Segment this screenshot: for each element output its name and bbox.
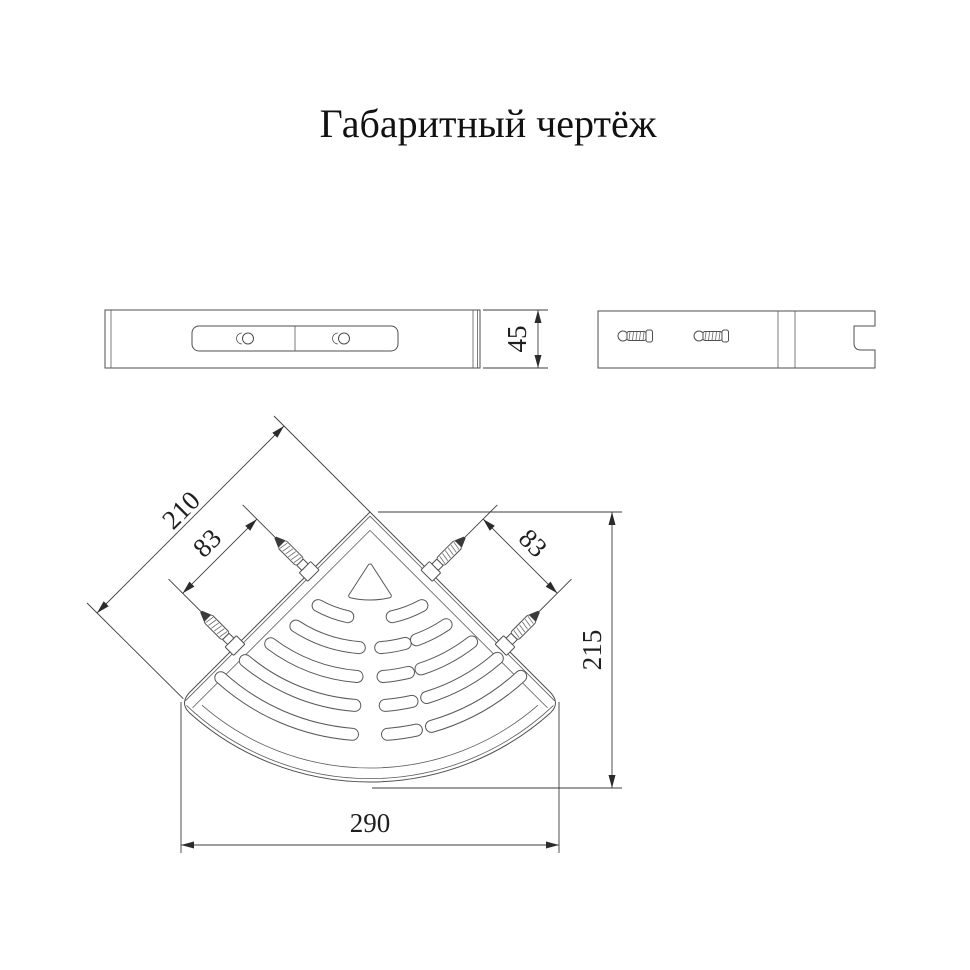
side-view (598, 311, 875, 368)
dowel-screw-icon (495, 606, 544, 655)
dim-label-215: 215 (577, 630, 607, 671)
anchor-screw-icon (694, 330, 729, 342)
dim-label-45: 45 (502, 326, 532, 353)
dowel-screw-icon (270, 532, 319, 581)
dowel-screw-icon (421, 532, 470, 581)
front-view (105, 310, 480, 368)
dim-label-210: 210 (156, 485, 206, 535)
drawing-page: Габаритный чертёж 45 (0, 0, 970, 970)
plan-view (87, 416, 572, 782)
dimension-front-height: 45 (483, 310, 548, 368)
dowel-screw-icon (195, 606, 244, 655)
dimension-left-screw-spacing: 83 (183, 519, 257, 593)
dimensional-drawing: Габаритный чертёж 45 (0, 0, 970, 970)
dimension-right-screw-spacing: 83 (483, 519, 557, 593)
dim-label-83-left: 83 (187, 523, 227, 563)
drawing-title: Габаритный чертёж (320, 101, 657, 146)
anchor-screw-icon (618, 330, 653, 342)
dim-label-83-right: 83 (513, 523, 553, 563)
dim-label-290: 290 (350, 808, 391, 838)
